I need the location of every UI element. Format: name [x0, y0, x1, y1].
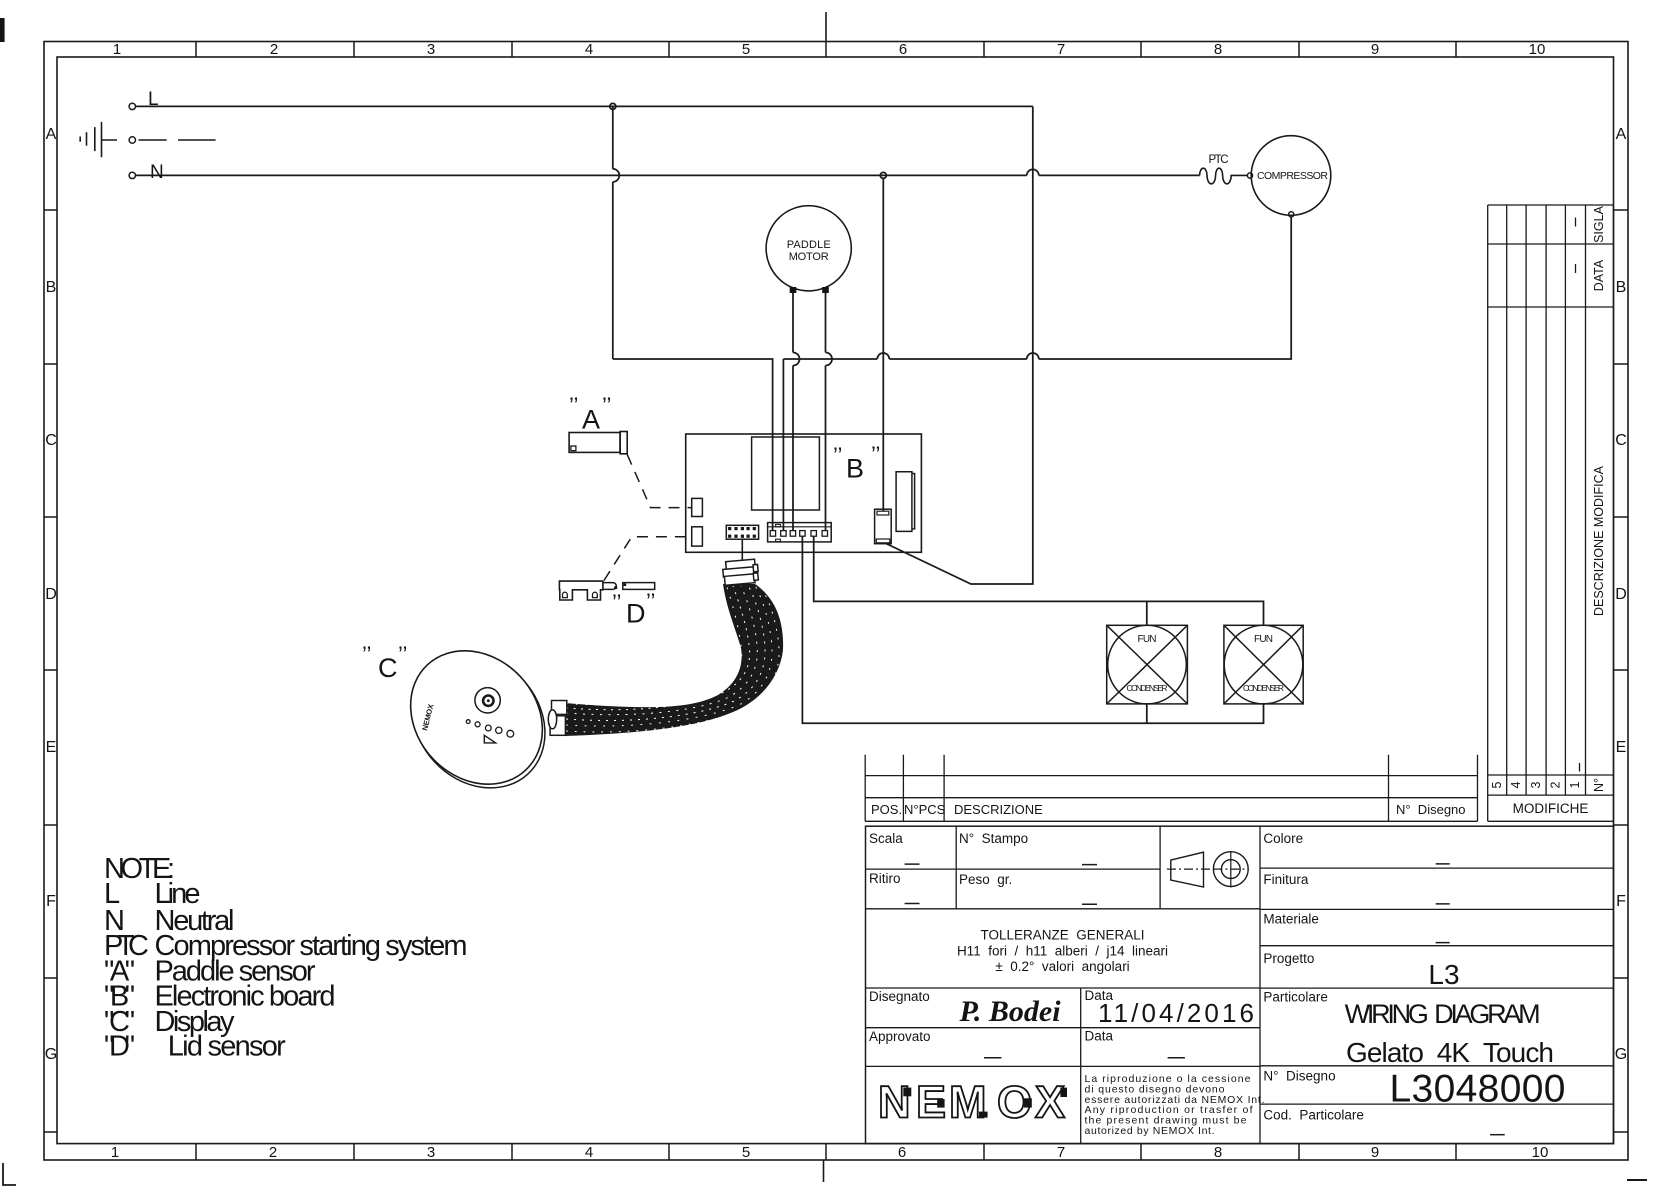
svg-text:PADDLE: PADDLE: [787, 239, 831, 251]
svg-text:’’: ’’: [871, 442, 880, 467]
svg-text:G: G: [45, 1046, 57, 1063]
svg-text:’’: ’’: [833, 443, 842, 468]
svg-text:5: 5: [742, 1144, 750, 1161]
svg-text:2: 2: [1549, 781, 1563, 788]
svg-text:’’: ’’: [362, 642, 371, 667]
svg-text:6: 6: [899, 41, 907, 58]
svg-text:DATA: DATA: [1592, 259, 1606, 291]
svg-text:2: 2: [269, 1144, 277, 1161]
svg-text:3: 3: [427, 1144, 435, 1161]
svg-text:7: 7: [1057, 1144, 1065, 1161]
svg-text:MODIFICHE: MODIFICHE: [1513, 801, 1589, 816]
svg-text:8: 8: [1214, 1144, 1222, 1161]
svg-text:Ritiro: Ritiro: [869, 871, 901, 886]
svg-text:H11 fori / h11 alberi /: H11 fori / h11 alberi / j14 lineari: [957, 944, 1168, 959]
svg-text:1: 1: [111, 1144, 119, 1161]
svg-text:D: D: [45, 586, 57, 603]
svg-text:N°PCS: N°PCS: [904, 802, 946, 817]
svg-text:L3048000: L3048000: [1390, 1068, 1566, 1111]
svg-text:TOLLERANZE GENERALI: TOLLERANZE GENERALI: [980, 928, 1144, 943]
svg-text:F: F: [1616, 893, 1626, 910]
svg-text:B: B: [1616, 279, 1627, 296]
svg-text:POS.: POS.: [871, 802, 902, 817]
svg-text:P. Bodei: P. Bodei: [958, 995, 1061, 1028]
svg-text:N°: N°: [1592, 778, 1606, 792]
svg-text:C: C: [45, 432, 57, 449]
svg-text:10: 10: [1532, 1144, 1549, 1161]
svg-text:CONDENSER: CONDENSER: [1127, 683, 1168, 693]
svg-text:A: A: [1616, 126, 1627, 143]
svg-text:FUN: FUN: [1254, 634, 1273, 645]
svg-text:1: 1: [1568, 781, 1582, 788]
svg-text:’’: ’’: [612, 590, 621, 615]
svg-text:autorized by NEMOX Int.: autorized by NEMOX Int.: [1085, 1125, 1215, 1137]
svg-text:2: 2: [270, 41, 278, 58]
svg-text:WIRING DIAGRAM: WIRING DIAGRAM: [1345, 999, 1541, 1029]
svg-text:C: C: [1615, 432, 1627, 449]
svg-text:6: 6: [898, 1144, 906, 1161]
svg-text:X: X: [1035, 1077, 1065, 1128]
svg-text:L3: L3: [1428, 959, 1459, 990]
svg-text:Particolare: Particolare: [1263, 989, 1328, 1004]
svg-text:F: F: [46, 893, 56, 910]
svg-text:SIGLA: SIGLA: [1592, 205, 1606, 242]
svg-text:A: A: [46, 126, 57, 143]
svg-text:DESCRIZIONE MODIFICA: DESCRIZIONE MODIFICA: [1592, 465, 1606, 616]
svg-text:Materiale: Materiale: [1263, 912, 1319, 927]
svg-text:’’: ’’: [398, 642, 407, 667]
svg-text:± 0.2° valori angolari: ± 0.2° valori angolari: [995, 959, 1129, 974]
svg-text:N: N: [150, 162, 164, 183]
svg-text:10: 10: [1529, 41, 1546, 58]
svg-text:Cod. Particolare: Cod. Particolare: [1263, 1107, 1364, 1122]
svg-text:8: 8: [1214, 41, 1222, 58]
svg-text:Lid sensor: Lid sensor: [168, 1031, 286, 1063]
svg-text:Disegnato: Disegnato: [869, 989, 930, 1004]
svg-text:1: 1: [113, 41, 121, 58]
svg-text:C: C: [378, 653, 398, 683]
svg-text:D: D: [1615, 586, 1627, 603]
svg-text:Gelato 4K Touch: Gelato 4K Touch: [1346, 1037, 1554, 1068]
svg-text:4: 4: [1509, 781, 1523, 788]
svg-text:Approvato: Approvato: [869, 1029, 931, 1044]
svg-text:E: E: [46, 739, 57, 756]
svg-text:G: G: [1615, 1046, 1627, 1063]
svg-text:9: 9: [1371, 1144, 1379, 1161]
svg-text:DESCRIZIONE: DESCRIZIONE: [954, 802, 1043, 817]
svg-text:9: 9: [1371, 41, 1379, 58]
svg-text:D: D: [626, 599, 646, 629]
svg-text:M: M: [949, 1077, 987, 1128]
svg-text:COMPRESSOR: COMPRESSOR: [1257, 170, 1328, 182]
svg-text:4: 4: [585, 41, 593, 58]
svg-text:N° Stampo: N° Stampo: [959, 831, 1028, 846]
svg-text:4: 4: [585, 1144, 593, 1161]
svg-text:3: 3: [427, 41, 435, 58]
svg-text:PTC: PTC: [1209, 154, 1229, 166]
svg-text:A: A: [582, 405, 600, 435]
svg-text:B: B: [46, 279, 57, 296]
svg-text:Scala: Scala: [869, 831, 903, 846]
svg-text:Colore: Colore: [1263, 831, 1303, 846]
svg-text:N° Disegno: N° Disegno: [1396, 802, 1466, 817]
svg-text:N° Disegno: N° Disegno: [1263, 1068, 1335, 1083]
svg-text:’’: ’’: [602, 393, 611, 418]
svg-text:Finitura: Finitura: [1263, 872, 1309, 887]
svg-text:FUN: FUN: [1138, 634, 1157, 645]
svg-text:"D": "D": [104, 1031, 135, 1063]
svg-text:Peso gr.: Peso gr.: [959, 872, 1012, 887]
svg-text:Data: Data: [1085, 1029, 1114, 1044]
svg-text:’’: ’’: [646, 589, 655, 614]
svg-text:11/04/2016: 11/04/2016: [1098, 998, 1254, 1028]
svg-text:MOTOR: MOTOR: [789, 251, 829, 263]
svg-text:CONDENSER: CONDENSER: [1243, 683, 1284, 693]
svg-text:’’: ’’: [569, 393, 578, 418]
svg-text:Progetto: Progetto: [1263, 951, 1314, 966]
svg-text:N: N: [878, 1077, 911, 1128]
svg-text:5: 5: [742, 41, 750, 58]
svg-text:5: 5: [1490, 781, 1504, 788]
svg-text:E: E: [1616, 739, 1627, 756]
svg-text:3: 3: [1529, 781, 1543, 788]
svg-text:B: B: [846, 454, 864, 484]
svg-text:7: 7: [1057, 41, 1065, 58]
